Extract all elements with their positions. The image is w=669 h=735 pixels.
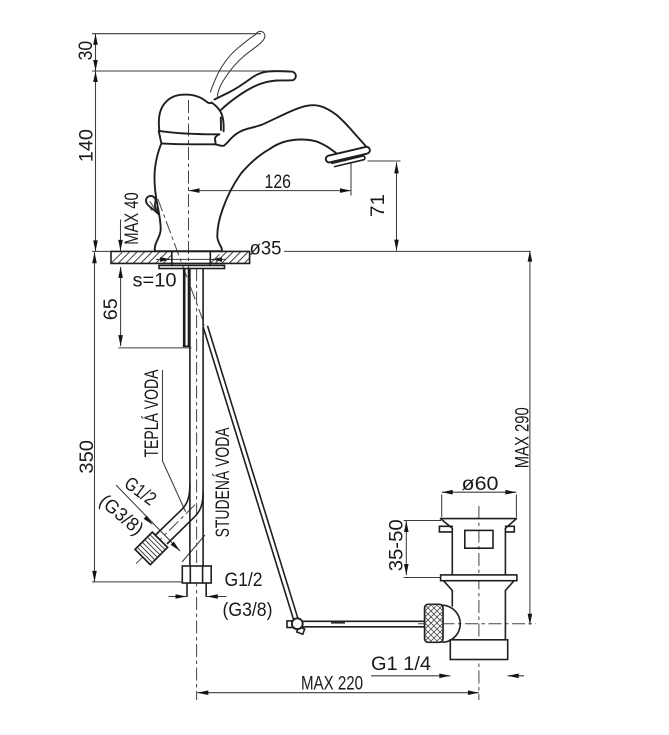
svg-text:ø35: ø35	[250, 239, 282, 260]
svg-text:STUDENÁ VODA: STUDENÁ VODA	[213, 427, 234, 537]
svg-text:MAX 40: MAX 40	[122, 192, 143, 245]
svg-text:TEPLÁ VODA: TEPLÁ VODA	[142, 369, 163, 457]
svg-text:126: 126	[265, 172, 292, 193]
svg-text:30: 30	[76, 41, 97, 61]
svg-text:71: 71	[368, 194, 389, 217]
svg-text:65: 65	[101, 298, 122, 320]
svg-text:MAX 220: MAX 220	[301, 674, 363, 695]
svg-text:(G3/8): (G3/8)	[223, 600, 273, 621]
svg-text:G1 1/4: G1 1/4	[371, 654, 431, 675]
svg-text:35-50: 35-50	[387, 519, 408, 571]
svg-text:MAX 290: MAX 290	[513, 407, 534, 468]
svg-text:140: 140	[77, 129, 98, 162]
svg-text:350: 350	[77, 440, 98, 474]
svg-text:G1/2: G1/2	[225, 570, 263, 591]
svg-text:ø60: ø60	[462, 474, 499, 495]
svg-text:s=10: s=10	[133, 271, 177, 292]
